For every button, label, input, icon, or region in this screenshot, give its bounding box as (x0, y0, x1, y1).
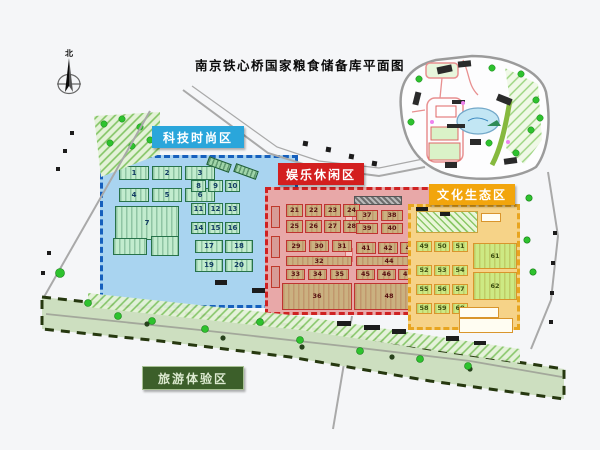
park-area (401, 56, 549, 179)
building: 20 (225, 259, 253, 272)
building: 39 (356, 223, 378, 234)
building: 54 (452, 265, 468, 276)
building: 46 (377, 269, 396, 280)
building (151, 236, 179, 256)
building: 49 (416, 241, 432, 252)
building: 38 (381, 210, 403, 221)
building: 35 (330, 269, 349, 280)
building (459, 307, 499, 318)
building: 50 (434, 241, 450, 252)
zone-label-leisure: 娱乐休闲区 (278, 163, 364, 185)
building: 36 (282, 283, 352, 310)
building: 23 (324, 204, 341, 217)
building: 30 (309, 240, 329, 252)
building: 4 (119, 188, 149, 202)
building: 14 (191, 222, 206, 234)
building: 10 (225, 180, 240, 192)
building: 19 (195, 259, 223, 272)
building: 1 (119, 166, 149, 180)
building (113, 238, 147, 255)
building: 40 (381, 223, 403, 234)
building: 29 (286, 240, 306, 252)
building: 2 (152, 166, 182, 180)
building: 16 (225, 222, 240, 234)
zone-label-tourism: 旅游体验区 (142, 366, 244, 390)
building: 42 (378, 242, 398, 254)
building: 31 (332, 240, 352, 252)
building: 56 (434, 284, 450, 295)
page-title: 南京铁心桥国家粮食储备库平面图 (0, 55, 600, 74)
building: 15 (208, 222, 223, 234)
building: 32 (286, 256, 352, 266)
zone-culture: 49 50 51 52 53 54 55 56 57 58 59 60 61 6… (408, 204, 520, 330)
building: 33 (286, 269, 305, 280)
building: 51 (452, 241, 468, 252)
building: 8 (191, 180, 206, 192)
building: 9 (208, 180, 223, 192)
building (271, 266, 280, 288)
building: 25 (286, 220, 303, 233)
building: 26 (305, 220, 322, 233)
building: 55 (416, 284, 432, 295)
building: 13 (225, 203, 240, 215)
building: 45 (356, 269, 375, 280)
building (271, 206, 280, 228)
building: 58 (416, 303, 432, 314)
building (271, 236, 280, 258)
building: 3 (185, 166, 215, 180)
building (481, 213, 501, 222)
building: 41 (356, 242, 376, 254)
lawn (416, 211, 478, 233)
building (459, 318, 513, 333)
building: 57 (452, 284, 468, 295)
building: 5 (152, 188, 182, 202)
building: 12 (208, 203, 223, 215)
site-plan: 南京铁心桥国家粮食储备库平面图 1 2 3 4 5 6 7 8 9 10 11 … (0, 0, 600, 450)
building: 37 (356, 210, 378, 221)
building: 61 (473, 243, 517, 269)
building: 7 (115, 206, 179, 240)
building: 34 (308, 269, 327, 280)
building: 18 (225, 240, 253, 253)
building: 59 (434, 303, 450, 314)
building: 22 (305, 204, 322, 217)
building: 17 (195, 240, 223, 253)
building: 11 (191, 203, 206, 215)
building: 52 (416, 265, 432, 276)
zone-label-tech: 科技时尚区 (152, 126, 244, 148)
zone-label-culture: 文化生态区 (429, 184, 515, 205)
building: 21 (286, 204, 303, 217)
building (233, 163, 259, 180)
building: 53 (434, 265, 450, 276)
building: 62 (473, 272, 517, 300)
building: 27 (324, 220, 341, 233)
building (354, 196, 402, 205)
